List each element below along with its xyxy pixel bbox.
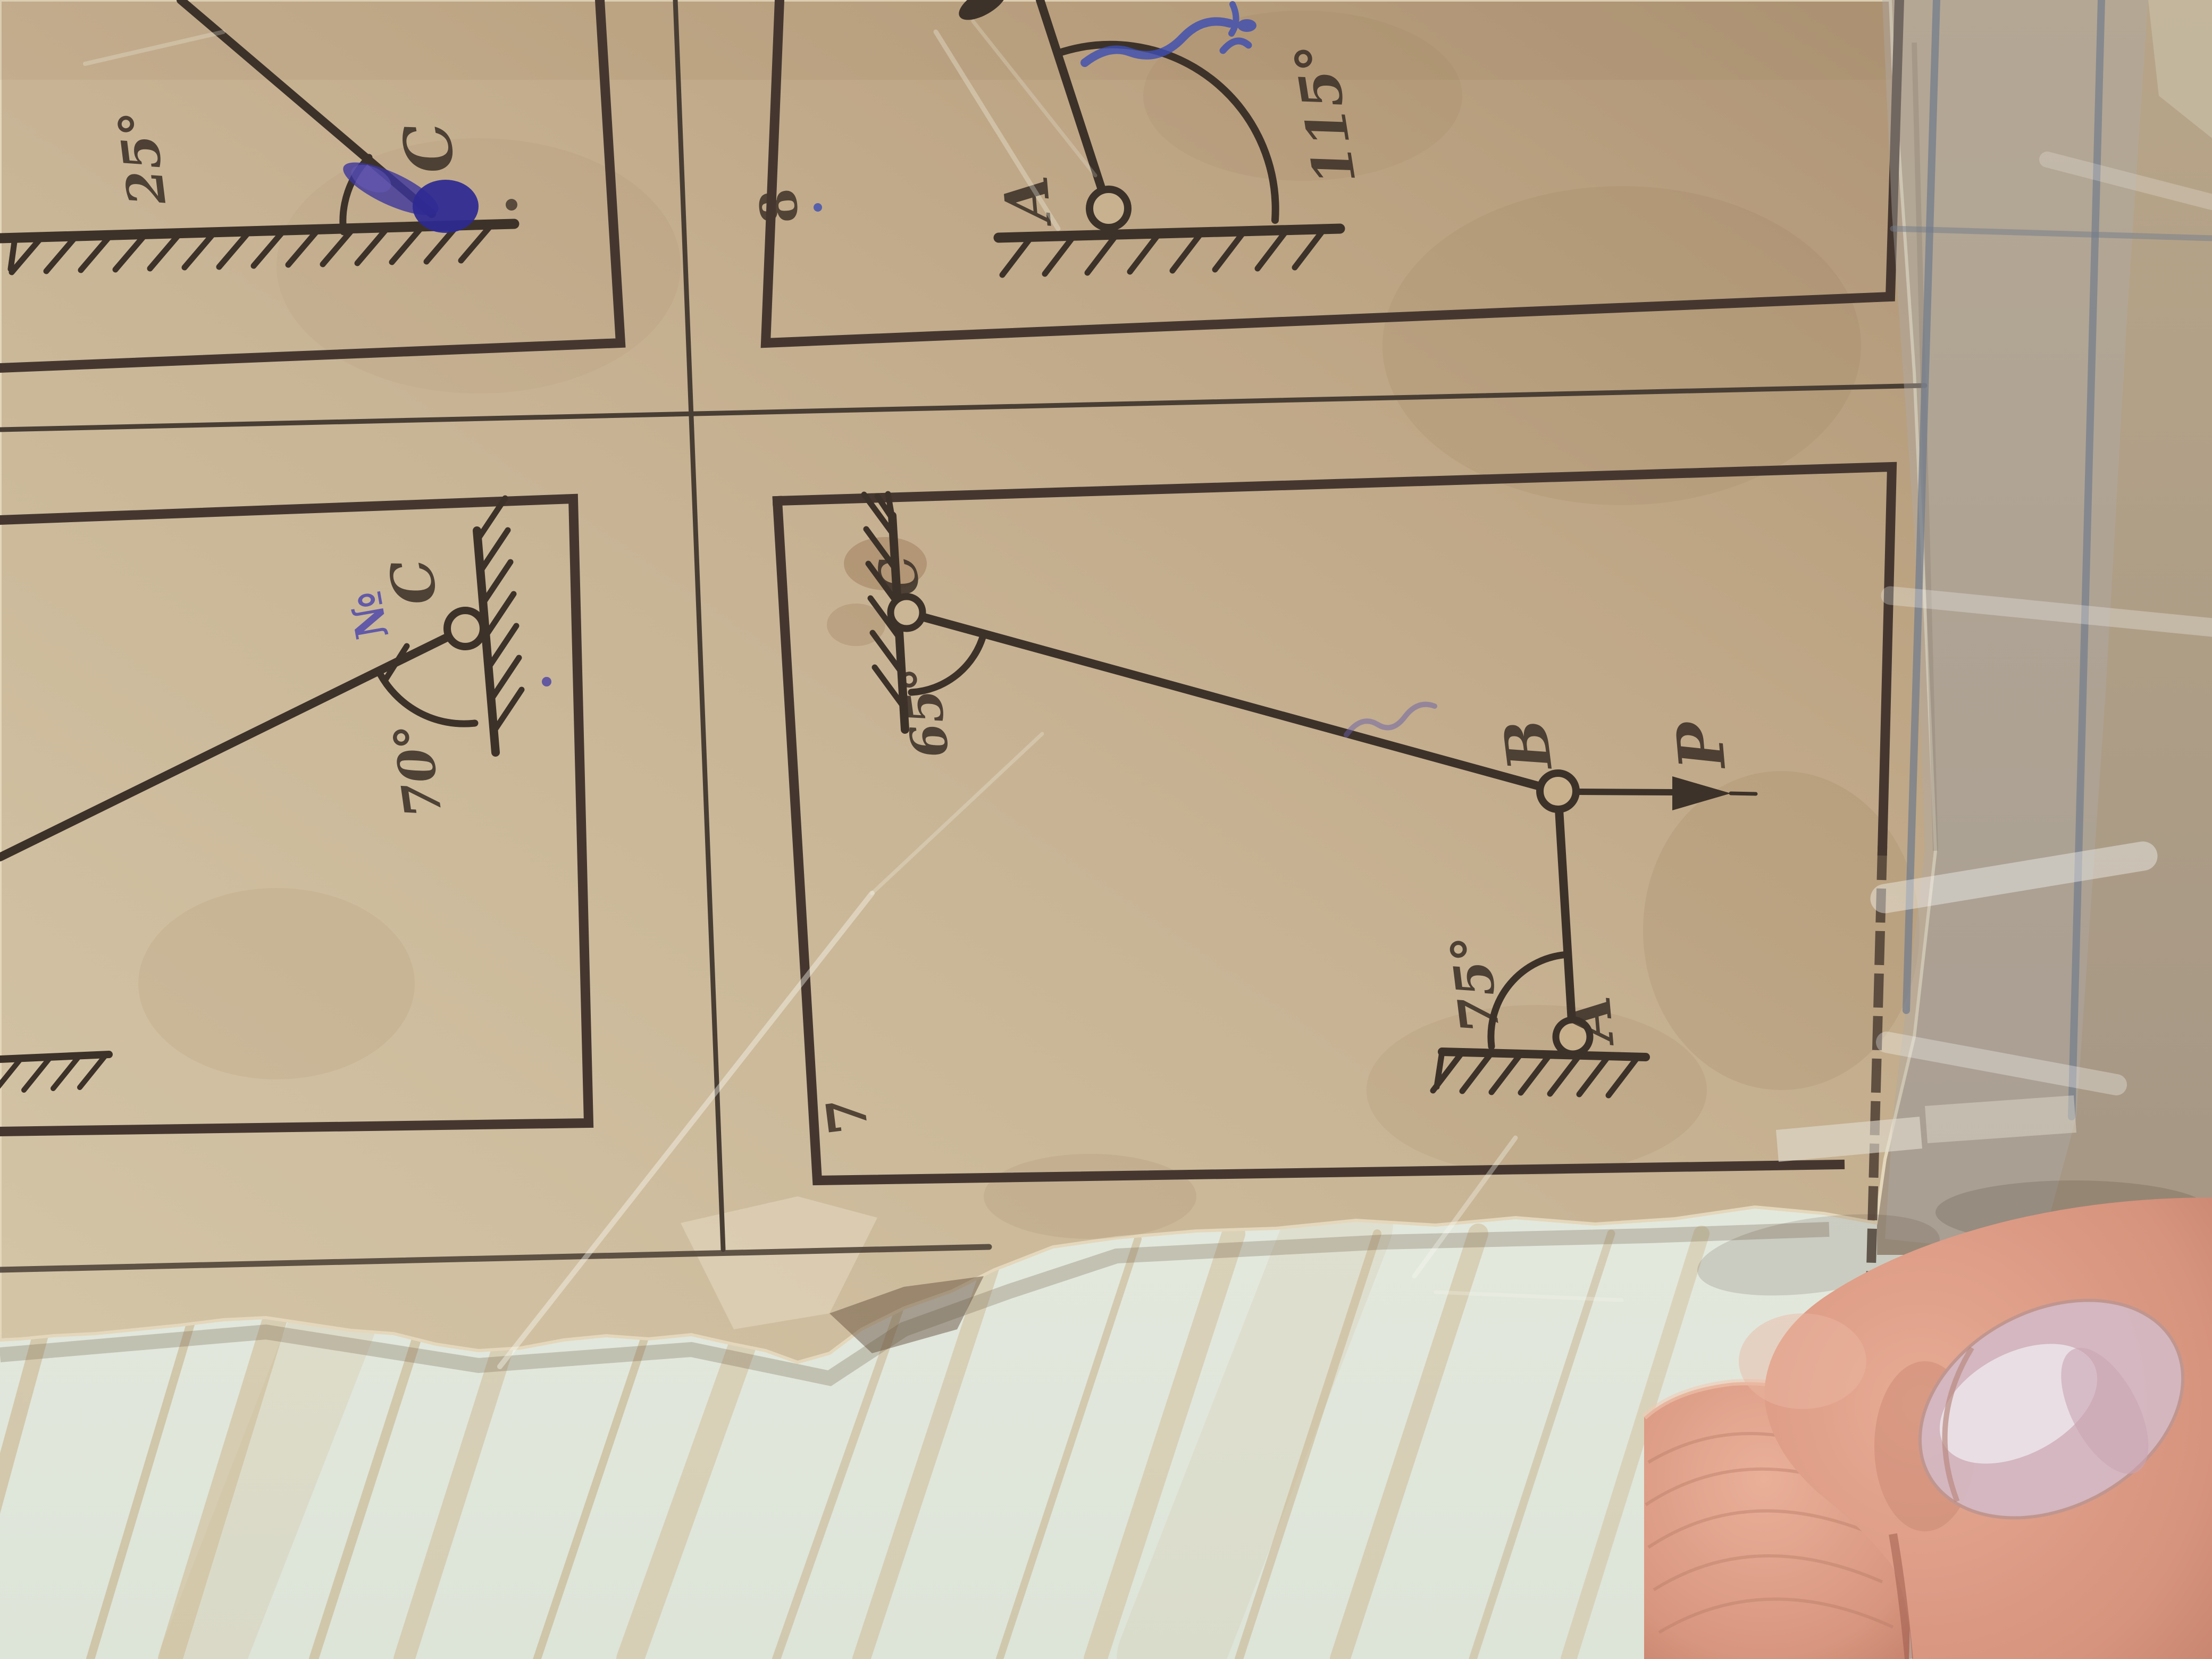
vignette — [0, 0, 2212, 1659]
scene: 25° C 8 115° A 70° C № — [0, 0, 2212, 1659]
photo-of-textbook-page: 25° C 8 115° A 70° C № — [0, 0, 2212, 1659]
